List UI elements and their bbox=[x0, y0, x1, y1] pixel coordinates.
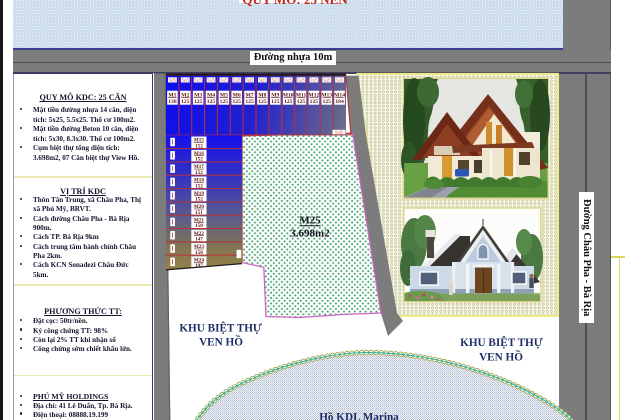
svg-text:VEN HỒ: VEN HỒ bbox=[479, 350, 523, 363]
svg-text:138: 138 bbox=[168, 99, 177, 105]
svg-text:5x25: 5x25 bbox=[182, 78, 189, 82]
svg-text:M25: M25 bbox=[299, 214, 321, 226]
svg-text:125: 125 bbox=[258, 99, 267, 105]
svg-text:5x25: 5x25 bbox=[323, 78, 330, 82]
svg-text:197: 197 bbox=[195, 263, 203, 269]
svg-text:KHU BIỆT THỰ: KHU BIỆT THỰ bbox=[179, 321, 262, 334]
svg-text:5x25: 5x25 bbox=[285, 78, 292, 82]
svg-text:5x25: 5x25 bbox=[259, 78, 266, 82]
svg-text:125: 125 bbox=[310, 99, 319, 105]
svg-text:6x30: 6x30 bbox=[335, 131, 342, 135]
svg-text:Hồ KDL Marina: Hồ KDL Marina bbox=[319, 412, 399, 420]
svg-text:KHU BIỆT THỰ: KHU BIỆT THỰ bbox=[460, 336, 543, 349]
svg-text:VEN HỒ: VEN HỒ bbox=[199, 336, 243, 349]
svg-text:5x25: 5x25 bbox=[297, 78, 304, 82]
svg-text:125: 125 bbox=[207, 99, 216, 105]
svg-text:5x25: 5x25 bbox=[336, 78, 343, 82]
svg-text:125: 125 bbox=[284, 99, 293, 105]
svg-text:125: 125 bbox=[297, 99, 306, 105]
svg-text:125: 125 bbox=[181, 99, 190, 105]
svg-text:5x25: 5x25 bbox=[246, 78, 253, 82]
svg-text:5x25: 5x25 bbox=[207, 78, 214, 82]
svg-text:125: 125 bbox=[245, 99, 254, 105]
svg-text:125: 125 bbox=[323, 99, 332, 105]
svg-text:5x25: 5x25 bbox=[169, 78, 176, 82]
svg-text:3.698m2: 3.698m2 bbox=[290, 227, 330, 239]
svg-text:125: 125 bbox=[194, 99, 203, 105]
svg-text:125: 125 bbox=[233, 99, 242, 105]
svg-text:5x25: 5x25 bbox=[220, 78, 227, 82]
svg-text:5x25: 5x25 bbox=[272, 78, 279, 82]
svg-text:125: 125 bbox=[271, 99, 280, 105]
svg-text:184: 184 bbox=[335, 99, 344, 105]
svg-text:5x25: 5x25 bbox=[310, 78, 317, 82]
svg-text:5x25: 5x25 bbox=[195, 78, 202, 82]
svg-text:125: 125 bbox=[220, 99, 229, 105]
svg-text:5x25: 5x25 bbox=[233, 78, 240, 82]
